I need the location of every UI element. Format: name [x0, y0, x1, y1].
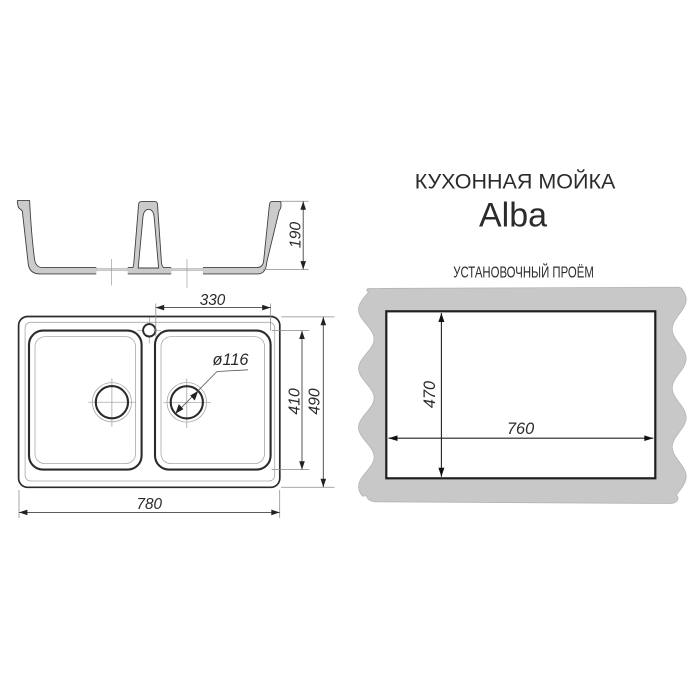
svg-text:УСТАНОВОЧНЫЙ ПРОЁМ: УСТАНОВОЧНЫЙ ПРОЁМ [453, 261, 594, 281]
svg-text:Alba: Alba [479, 197, 547, 235]
svg-text:410: 410 [287, 388, 304, 415]
svg-text:ø116: ø116 [213, 351, 250, 369]
svg-text:КУХОННАЯ МОЙКА: КУХОННАЯ МОЙКА [415, 169, 616, 194]
svg-text:780: 780 [137, 496, 163, 513]
svg-text:330: 330 [200, 292, 226, 309]
svg-text:190: 190 [288, 222, 305, 249]
svg-text:470: 470 [421, 381, 439, 408]
svg-text:760: 760 [507, 420, 534, 438]
svg-text:490: 490 [306, 388, 323, 415]
